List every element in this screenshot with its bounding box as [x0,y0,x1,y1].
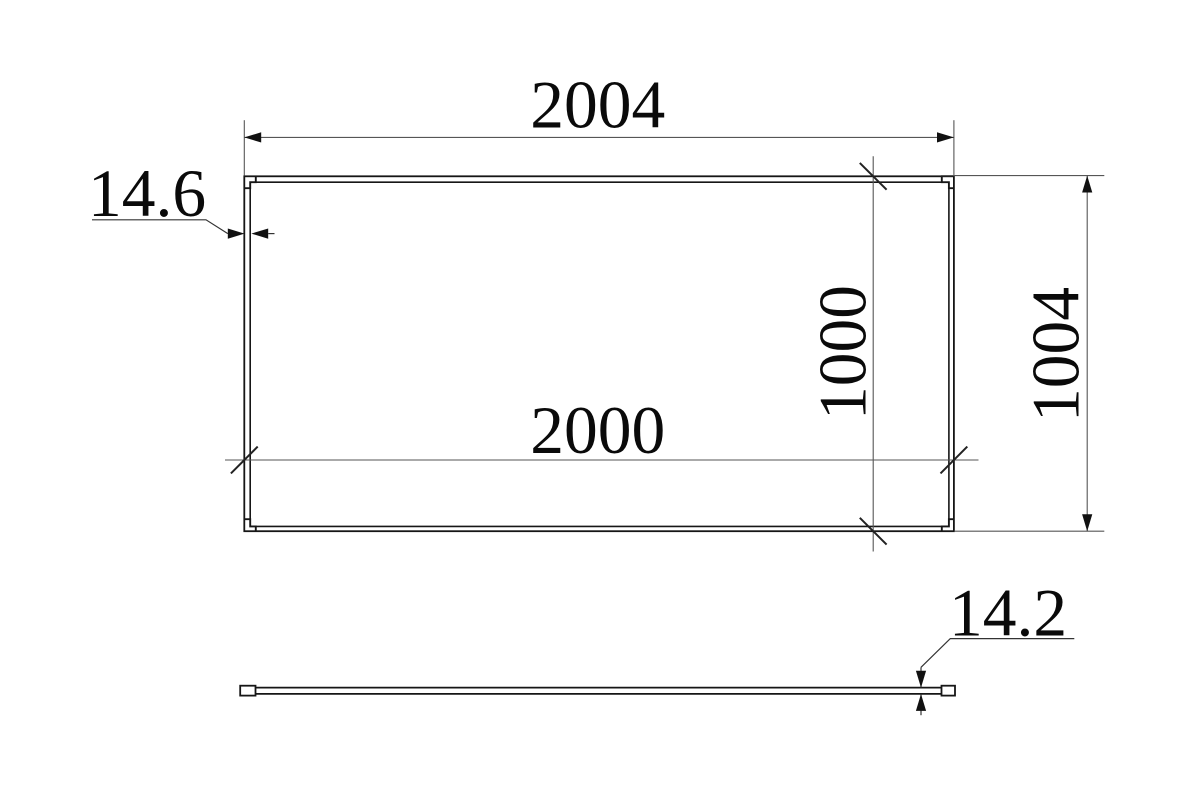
svg-text:2004: 2004 [530,68,665,143]
svg-text:2000: 2000 [530,393,665,468]
svg-text:1004: 1004 [1019,287,1094,422]
svg-text:1000: 1000 [805,285,880,420]
